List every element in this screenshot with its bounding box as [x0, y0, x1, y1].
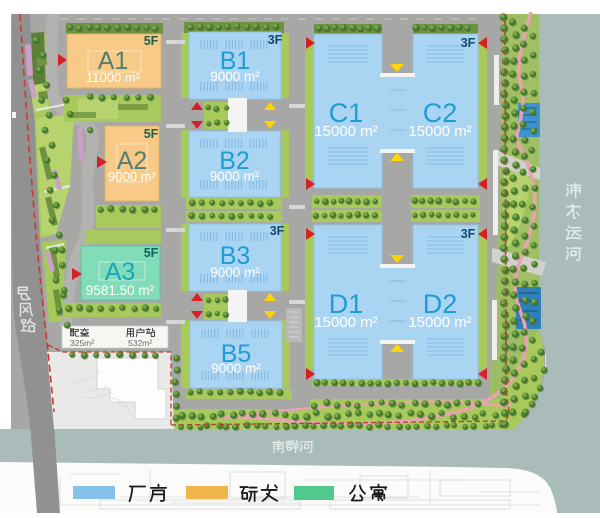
svg-text:15000 m²: 15000 m²: [314, 314, 377, 331]
svg-text:3F: 3F: [461, 36, 476, 50]
svg-text:15000 m²: 15000 m²: [314, 123, 377, 140]
svg-text:9000 m²: 9000 m²: [210, 69, 260, 84]
svg-text:9000 m²: 9000 m²: [108, 169, 156, 184]
svg-text:325m²: 325m²: [70, 338, 94, 348]
svg-text:9581.50 m²: 9581.50 m²: [86, 283, 155, 298]
svg-text:5F: 5F: [144, 246, 159, 260]
svg-text:532m²: 532m²: [128, 338, 152, 348]
svg-text:15000 m²: 15000 m²: [408, 314, 471, 331]
svg-text:9000 m²: 9000 m²: [210, 169, 260, 184]
svg-text:9000 m²: 9000 m²: [211, 361, 261, 376]
svg-text:A3: A3: [105, 258, 136, 286]
svg-text:5F: 5F: [144, 127, 159, 141]
svg-text:15000 m²: 15000 m²: [408, 123, 471, 140]
svg-text:11000 m²: 11000 m²: [86, 70, 141, 85]
svg-text:3F: 3F: [270, 224, 285, 238]
svg-text:3F: 3F: [268, 33, 283, 47]
svg-text:5F: 5F: [144, 34, 159, 48]
svg-text:9000 m²: 9000 m²: [210, 265, 260, 280]
svg-text:3F: 3F: [461, 227, 476, 241]
